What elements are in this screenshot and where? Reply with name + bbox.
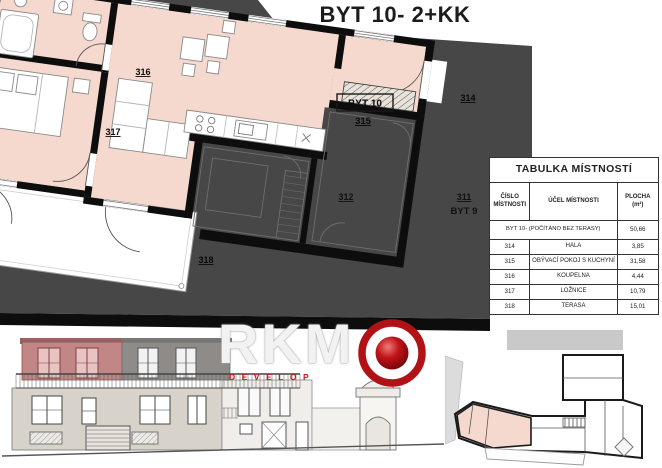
room-label-312: 312 — [338, 192, 353, 202]
marked-opening — [262, 422, 286, 448]
plan-sheet: 316 317 BYT 10 315 314 318 312 311 BYT 9… — [0, 0, 662, 468]
room-label-317: 317 — [105, 127, 120, 137]
col-purpose: ÚČEL MÍSTNOSTI — [530, 183, 617, 221]
room-label-314: 314 — [460, 93, 475, 103]
room-label-315: 315 — [355, 116, 372, 127]
floor-plan: 316 317 BYT 10 315 314 318 312 311 BYT 9 — [0, 0, 540, 334]
logo-target-icon — [357, 318, 427, 388]
col-number: ČÍSLO MÍSTNOSTI — [490, 183, 530, 221]
logo-text: RKM — [218, 316, 355, 372]
room-table-header: ČÍSLO MÍSTNOSTI ÚČEL MÍSTNOSTI PLOCHA (m… — [490, 183, 659, 221]
table-row: 315OBÝVACÍ POKOJ S KUCHYNÍ31,58 — [490, 255, 659, 270]
apartment-label-byt9: BYT 9 — [451, 206, 478, 217]
apartment-label-byt10: BYT 10 — [348, 99, 382, 110]
room-table: TABULKA MÍSTNOSTÍ ČÍSLO MÍSTNOSTI ÚČEL M… — [489, 157, 659, 315]
key-plan — [445, 328, 662, 468]
room-label-318: 318 — [198, 255, 213, 265]
keyplan-adjacent-roof — [507, 330, 623, 350]
room-table-title: TABULKA MÍSTNOSTÍ — [490, 158, 659, 183]
table-row: 316KOUPELNA4,44 — [490, 270, 659, 285]
table-row-summary: BYT 10- (POČÍTÁNO BEZ TERASY) 50,66 — [490, 221, 659, 240]
garage-door — [86, 426, 130, 450]
col-area: PLOCHA (m²) — [617, 183, 659, 221]
page-title: BYT 10- 2+KK — [280, 2, 510, 28]
table-row: 314HALA3,85 — [490, 240, 659, 255]
logo-subtitle: DEVELOP — [229, 372, 315, 382]
room-label-311: 311 — [457, 192, 472, 202]
table-row: 317LOŽNICE10,79 — [490, 285, 659, 300]
table-row: 318TERASA15,01 — [490, 300, 659, 315]
room-label-316: 316 — [135, 67, 150, 77]
gate-tower — [356, 380, 400, 450]
